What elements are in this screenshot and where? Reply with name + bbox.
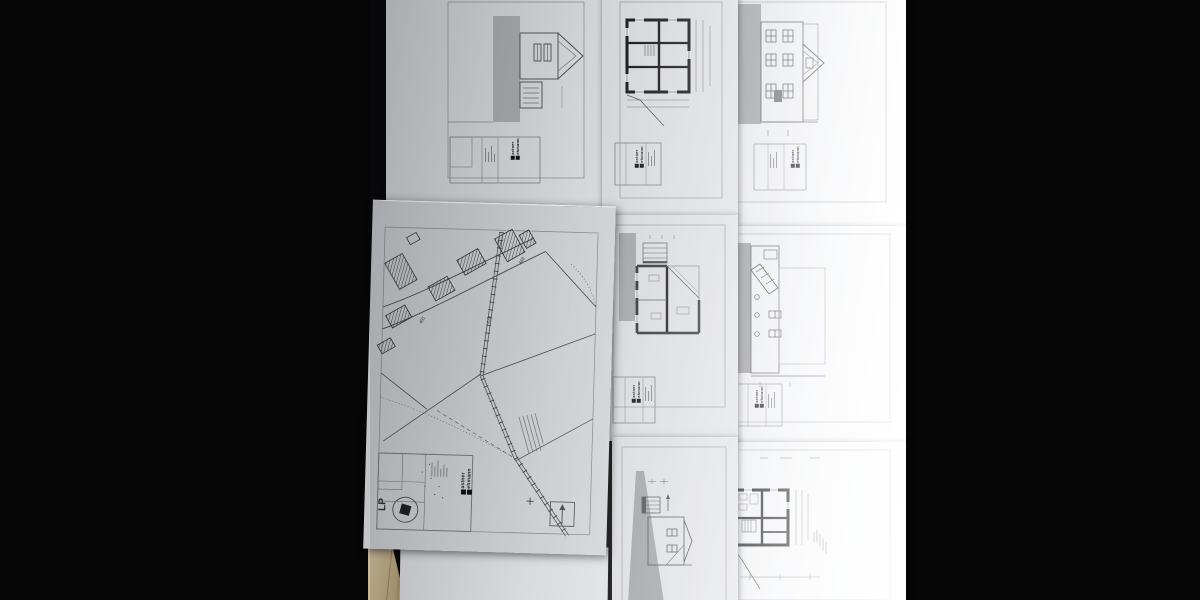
floor-plan-drawing xyxy=(602,0,738,218)
stairs xyxy=(742,520,756,532)
logo-line2: ehmann xyxy=(795,146,800,163)
floor-plan-drawing xyxy=(720,442,906,600)
windows xyxy=(667,529,677,552)
direction-arrow-icon xyxy=(666,494,670,511)
logo-line2: ehmann xyxy=(466,468,473,489)
logo-mark-icon xyxy=(631,399,635,403)
sheet-elevation-side: astner ehmann xyxy=(720,226,906,446)
sheet-floor-plan-ground: astner ehmann xyxy=(602,0,738,218)
logo-line2: ehmann xyxy=(515,138,520,155)
logo-line2: ehmann xyxy=(759,386,764,403)
fine-print-text xyxy=(768,392,775,408)
tick-marks xyxy=(650,235,674,239)
sheet-floor-plan-upper: astner ehmann xyxy=(605,215,738,441)
floor-plan-drawing xyxy=(605,215,738,441)
svg-text:481: 481 xyxy=(418,315,426,325)
logo-mark-icon xyxy=(639,164,643,168)
sheet-elevation-street: astner ehmann xyxy=(720,0,906,232)
sheet-floor-plan-basement xyxy=(720,442,906,600)
section-elevation-drawing xyxy=(386,0,608,206)
gable-outline xyxy=(684,520,692,562)
survey-cross xyxy=(526,498,533,505)
logo-line2: ehmann xyxy=(636,381,641,398)
elevation-drawing xyxy=(612,437,738,600)
dimension-text xyxy=(814,530,826,554)
fine-print-text xyxy=(485,146,495,162)
architect-logo: astner ehmann xyxy=(634,146,644,168)
logo-mark-icon xyxy=(759,404,763,408)
logo-line2: ehmann xyxy=(639,146,644,163)
stair-flight xyxy=(751,264,778,294)
dimension-lines xyxy=(740,490,820,580)
architect-logo: astner ehmann xyxy=(460,468,473,495)
logo-mark-icon xyxy=(510,156,514,160)
building-footprints xyxy=(377,226,536,358)
photo-of-architectural-plans: astner ehmann xyxy=(0,0,1200,600)
logo-mark-icon xyxy=(634,164,638,168)
windows xyxy=(766,30,793,98)
walls xyxy=(637,266,699,333)
stairs xyxy=(645,45,654,56)
fine-print-text xyxy=(645,385,652,401)
sheet-section-elevation-a: astner ehmann xyxy=(386,0,608,206)
fine-print-text xyxy=(770,152,777,168)
fine-print-text xyxy=(648,150,655,166)
logo-mark-icon xyxy=(795,164,799,168)
annotation-text xyxy=(518,413,544,454)
elevation-drawing xyxy=(720,0,906,232)
stairs xyxy=(642,497,660,513)
logo-mark-icon xyxy=(460,489,465,494)
fine-print-text xyxy=(431,460,447,476)
title-block-frame xyxy=(377,453,473,532)
logo-mark-icon xyxy=(636,399,640,403)
boundary-strip xyxy=(476,232,577,536)
title-block: astner ehmann xyxy=(453,475,480,488)
plan-sheets-area: astner ehmann xyxy=(370,0,906,600)
svg-text:468: 468 xyxy=(518,256,526,266)
terrain-band xyxy=(628,471,664,600)
lp-stamp-label: LP xyxy=(377,498,388,511)
stairs xyxy=(643,243,667,263)
title-block: astner ehmann xyxy=(748,392,770,402)
elevation-drawing xyxy=(720,226,906,446)
logo-mark-icon xyxy=(466,490,471,495)
fixtures xyxy=(739,494,758,510)
logo-mark-icon xyxy=(515,156,519,160)
architect-logo: astner ehmann xyxy=(631,381,641,403)
sheet-site-plan: 468 478 481 xyxy=(363,200,616,556)
logo-mark-icon xyxy=(754,404,758,408)
title-block: astner ehmann xyxy=(504,144,526,154)
north-arrow-icon xyxy=(550,502,575,527)
windows xyxy=(755,295,781,337)
architect-logo: astner ehmann xyxy=(510,138,520,160)
logo-mark-icon xyxy=(790,164,794,168)
gable-outline xyxy=(558,33,583,79)
title-block: astner ehmann xyxy=(784,152,806,162)
title-block: astner ehmann xyxy=(625,387,647,397)
terrain-band xyxy=(737,4,761,124)
title-block: astner ehmann xyxy=(628,152,650,162)
terrain-band xyxy=(619,233,636,321)
terrain-band xyxy=(493,16,520,122)
porch-block xyxy=(774,90,782,102)
architect-logo: astner ehmann xyxy=(754,386,764,408)
sheet-elevation-gable xyxy=(612,437,738,600)
tick-marks xyxy=(648,479,668,484)
architect-logo: astner ehmann xyxy=(790,146,800,168)
